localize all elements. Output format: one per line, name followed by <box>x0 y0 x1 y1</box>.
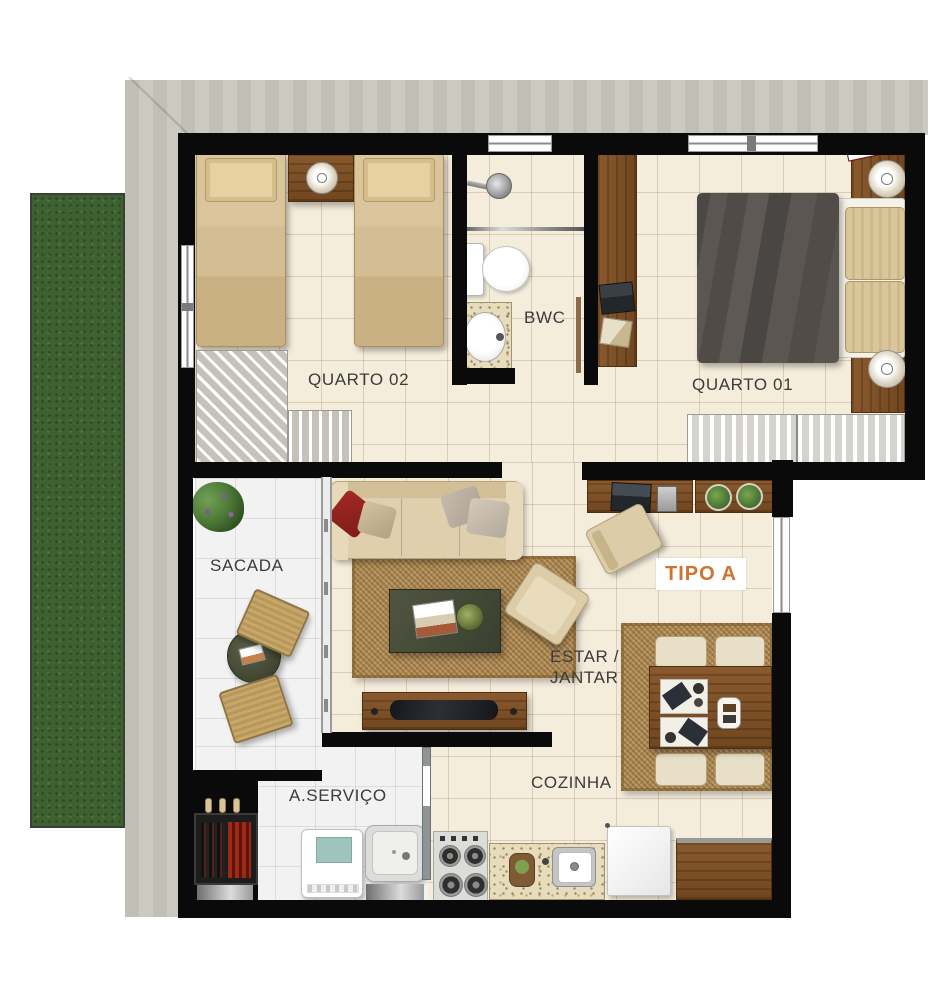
wall-right-corner <box>772 460 793 517</box>
bed-pillow <box>363 158 435 202</box>
sofa-cushion-line <box>401 498 402 556</box>
dining-chair-br <box>715 753 765 786</box>
washer-lid-window <box>316 837 352 863</box>
printer-icon-living <box>657 486 677 512</box>
kitchen-sink <box>552 847 596 887</box>
window-quarto01 <box>688 135 818 152</box>
placemat-a <box>660 679 708 714</box>
unit-type-badge: TIPO A <box>656 558 746 590</box>
table-lamp-quarto01-bottom <box>868 350 906 388</box>
window-bwc <box>488 135 552 152</box>
cabinet-under-sink <box>366 884 424 900</box>
room-label-quarto01: QUARTO 01 <box>692 375 793 395</box>
wall-mid-right <box>582 462 925 480</box>
glass-door-handle <box>324 582 328 595</box>
wall-bwc-right <box>584 133 598 385</box>
serving-tray <box>717 697 741 729</box>
estar-line2: JANTAR <box>550 667 619 688</box>
servico-kitchen-partition <box>422 747 431 880</box>
bwc-faucet-icon <box>496 333 504 341</box>
concrete-walkway-left <box>125 80 180 917</box>
plate-round-a2 <box>694 698 703 707</box>
floor-plan: QUARTO 02 BWC QUARTO 01 SACADA <box>0 0 948 1000</box>
stove-burner <box>464 873 488 897</box>
window-mullion <box>182 303 193 311</box>
wardrobe-quarto01 <box>687 414 905 463</box>
bwc-door-leaf <box>576 297 581 373</box>
tv <box>390 700 498 720</box>
grill-coals <box>201 823 225 877</box>
shower-glass-partition <box>467 227 584 231</box>
bed-pillow-quarto01-a <box>845 207 905 280</box>
coffee-table <box>389 589 501 653</box>
magazine-quarto01 <box>599 317 632 348</box>
grass-strip <box>30 193 125 828</box>
dining-chair-tr <box>715 636 765 669</box>
plate-round-a <box>693 683 704 694</box>
room-label-quarto02: QUARTO 02 <box>308 370 409 390</box>
dining-table <box>649 666 772 749</box>
laundry-sink <box>365 825 425 882</box>
tray-food <box>723 704 736 712</box>
laundry-faucet-icon <box>402 852 410 860</box>
plant-sacada <box>192 482 244 532</box>
estar-line1: ESTAR / <box>550 646 619 667</box>
grill-skewer-handle <box>205 798 212 813</box>
glass-door-handle <box>324 519 328 532</box>
wall-bottom <box>178 900 791 918</box>
potted-plant-b <box>736 483 763 510</box>
stove-burner <box>439 873 463 897</box>
window-dining <box>773 517 790 613</box>
grill-skewer-handle <box>219 798 226 813</box>
wall-right-upper <box>905 133 925 480</box>
washer-control-panel <box>307 884 359 893</box>
kitchen-counter-wood <box>676 838 772 900</box>
window-quarto02 <box>181 245 194 368</box>
counter-bottle <box>542 858 549 865</box>
bed-pillow <box>205 158 277 202</box>
kitchen-faucet-icon <box>570 862 579 871</box>
tv-rack-knob-right <box>510 708 517 715</box>
counter-basket <box>509 853 535 887</box>
grill-bench <box>197 885 253 900</box>
single-bed-2 <box>354 152 444 347</box>
table-lamp-quarto01-top <box>868 160 906 198</box>
dining-chair-tl <box>655 636 707 669</box>
stove-knobs <box>440 836 482 841</box>
placemat-b <box>660 717 708 747</box>
kitchen-counter-granite <box>489 843 605 900</box>
plate-round-b <box>665 732 676 743</box>
laundry-drain <box>392 850 396 854</box>
plate-dark-a <box>662 682 692 711</box>
refrigerator <box>607 826 671 896</box>
window-mullion <box>747 136 756 151</box>
room-label-servico: A.SERVIÇO <box>289 786 387 806</box>
tray-food2 <box>723 715 736 723</box>
bed-pillow-quarto01-b <box>845 281 905 353</box>
sofa-back <box>331 482 523 498</box>
room-label-bwc: BWC <box>524 308 565 328</box>
room-label-cozinha: COZINHA <box>531 773 612 793</box>
wardrobe-divider <box>796 415 798 464</box>
wall-right-lower <box>772 613 791 905</box>
stove-burner <box>439 845 461 867</box>
shower-head-icon <box>486 173 512 199</box>
grill-skewers <box>228 822 251 878</box>
potted-plant-a <box>705 484 732 511</box>
tv-rack-knob-left <box>371 708 378 715</box>
sofa-arm-right <box>506 482 523 560</box>
coffee-table-magazines <box>412 599 458 639</box>
refrigerator-hinge <box>605 823 610 828</box>
stove <box>433 831 488 901</box>
magazines-sacada <box>238 643 265 665</box>
wall-bwc-bottom <box>452 368 515 384</box>
plate-dark-b <box>678 718 708 747</box>
single-bed-1 <box>196 152 286 347</box>
glass-door-handle <box>324 645 328 658</box>
corner-wardrobe-quarto02-side <box>288 410 352 463</box>
coffee-table-bowl <box>456 603 484 631</box>
wall-living-bottom <box>322 732 552 747</box>
unit-type-label: TIPO A <box>665 563 737 586</box>
glass-door-handle <box>324 699 328 712</box>
room-label-sacada: SACADA <box>210 556 284 576</box>
sliding-glass-door <box>321 477 332 733</box>
room-label-estar: ESTAR / JANTAR <box>550 646 619 688</box>
wall-bwc-left <box>452 133 467 385</box>
concrete-walkway-top <box>125 80 928 135</box>
blanket-quarto01 <box>697 193 839 363</box>
dining-chair-bl <box>655 753 707 786</box>
tv-rack <box>362 692 527 730</box>
table-lamp-quarto02 <box>306 162 338 194</box>
washing-machine <box>301 829 363 898</box>
wall-mid-left <box>178 462 502 478</box>
throw-pillow-gray-b <box>466 497 511 538</box>
stove-burner <box>464 845 486 867</box>
laptop-icon-quarto01 <box>599 281 636 314</box>
toilet-bowl <box>482 246 530 292</box>
barbecue-grill <box>194 813 258 885</box>
grill-skewer-handle <box>233 798 240 813</box>
corner-wardrobe-quarto02 <box>196 350 288 463</box>
